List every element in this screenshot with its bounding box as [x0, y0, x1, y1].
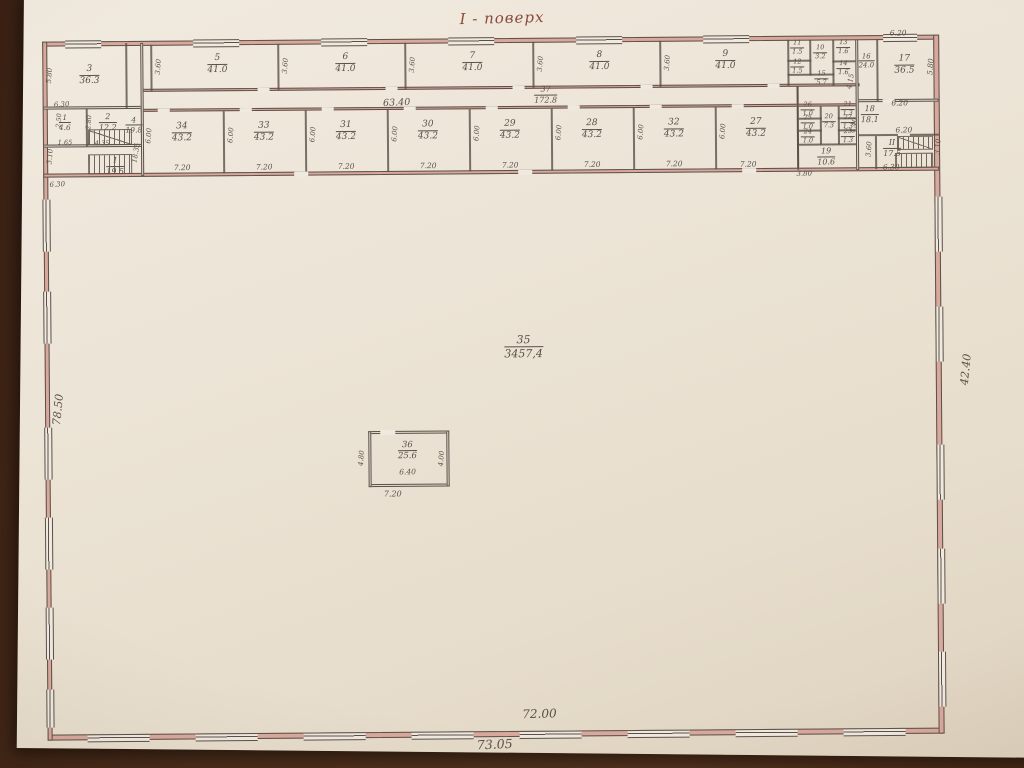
dimension-label: 3.60 [864, 141, 873, 157]
dimension-label: 63.40 [383, 97, 411, 109]
door-opening [641, 85, 653, 89]
wall [368, 431, 371, 487]
window-symbol [576, 36, 622, 44]
room-number: 9 [715, 49, 735, 61]
room-20-label: 207.3 [822, 113, 836, 130]
door-opening [486, 106, 498, 110]
dimension-label: 6.00 [308, 126, 317, 142]
dimension-label: 6.00 [718, 123, 727, 139]
room-area: 19.5 [106, 167, 124, 177]
dimension-label: 78.50 [50, 393, 66, 426]
window-symbol [934, 197, 942, 252]
room-area: 41.0 [589, 62, 609, 73]
dimension-label: 6.00 [390, 126, 399, 142]
room-area: 43.2 [500, 130, 520, 141]
dimension-label: 2.50 [54, 113, 63, 128]
dimension-label: 6.30 [54, 100, 70, 109]
room-number: 28 [582, 118, 602, 130]
dimension-label: 3.10 [933, 139, 942, 155]
window-symbol [412, 731, 474, 739]
wall [277, 44, 279, 90]
room-26-label: 261.0 [801, 101, 815, 118]
room-2-label: 212.2 [99, 112, 117, 132]
dimension-label: 5.80 [925, 58, 935, 75]
door-opening [568, 105, 580, 109]
wall [832, 39, 834, 85]
room-I-label: I19.5 [106, 156, 124, 176]
dimension-label: 7.20 [740, 160, 757, 169]
room-number: 36 [398, 440, 417, 451]
window-symbol [42, 200, 50, 252]
room-33-label: 3343.2 [254, 121, 274, 144]
room-8-label: 841.0 [589, 50, 609, 73]
dimension-label: 7.20 [384, 489, 402, 498]
room-number: 37 [534, 85, 557, 96]
photo-of-floor-plan: І - поверх 336.3419.8541.0641.0741.0841.… [0, 0, 1024, 768]
dimension-label: 7.20 [256, 162, 273, 171]
room-5-label: 541.0 [207, 53, 227, 76]
door-opening [513, 86, 525, 90]
room-16-label: 1624.0 [858, 52, 874, 70]
room-area: 43.2 [336, 132, 356, 143]
door-opening [386, 87, 398, 91]
wall [633, 108, 635, 170]
room-area: 36.3 [79, 76, 99, 87]
window-symbol [304, 732, 366, 740]
window-symbol [448, 37, 494, 45]
dimension-label: 6.30 [49, 180, 65, 189]
wall [446, 430, 449, 486]
wall [659, 41, 661, 87]
room-area: 41.0 [462, 63, 482, 74]
dimension-label: 6.20 [896, 125, 913, 134]
wall [715, 107, 717, 169]
window-symbol [938, 652, 946, 707]
room-32-label: 3243.2 [664, 117, 684, 140]
window-symbol [321, 38, 367, 46]
dimension-label: 2.80 [84, 115, 93, 130]
window-symbol [193, 39, 239, 47]
room-11-label: 111.5 [790, 39, 804, 56]
room-area: 1.5 [790, 67, 804, 75]
dimension-label: 7.20 [338, 162, 355, 171]
floor-plan: І - поверх 336.3419.8541.0641.0741.0841.… [0, 0, 1024, 768]
room-area: 41.0 [715, 61, 735, 72]
dimension-label: 6.00 [226, 127, 235, 143]
door-opening [742, 168, 756, 173]
plan-title: І - поверх [459, 8, 544, 28]
dimension-label: 42.40 [958, 353, 974, 386]
window-symbol [844, 728, 906, 736]
room-area: 43.2 [664, 129, 684, 140]
wall [469, 109, 471, 171]
dimension-label: 7.20 [420, 161, 437, 170]
door-opening [294, 172, 308, 177]
dimension-label: 6.20 [891, 98, 908, 107]
room-area: 7.3 [822, 122, 836, 130]
room-10-label: 103.2 [813, 44, 827, 61]
dimension-label: 6.40 [399, 467, 416, 476]
dimension-label: 7.20 [502, 160, 519, 169]
wall [809, 40, 811, 76]
room-area: 172.8 [534, 95, 557, 105]
dimension-label: 72.00 [522, 706, 557, 721]
room-area: 41.0 [335, 64, 355, 75]
room-number: 17 [894, 54, 914, 66]
wall [305, 111, 307, 173]
room-35-label: 353457,4 [504, 333, 543, 361]
room-area: 25.6 [398, 451, 417, 461]
window-symbol [736, 729, 798, 737]
window-symbol [43, 292, 51, 344]
dimension-label: 6.00 [554, 125, 563, 141]
room-number: 30 [418, 119, 438, 131]
dimension-label: 3.60 [536, 56, 545, 72]
door-opening [380, 430, 395, 435]
wall [551, 109, 553, 171]
room-number: 2 [99, 112, 117, 123]
wall [223, 111, 225, 173]
dimension-label: 3.60 [281, 58, 290, 74]
door-opening [258, 88, 270, 92]
room-area: 3.2 [813, 53, 827, 61]
window-symbol [936, 445, 944, 500]
room-number: 19 [817, 146, 835, 157]
dimension-label: 6.30 [883, 162, 900, 171]
wall [140, 43, 144, 176]
dimension-label: 18.35 [130, 142, 141, 163]
room-number: 5 [207, 53, 227, 65]
dimension-label: 3.60 [408, 57, 417, 73]
room-number: 4 [125, 115, 142, 125]
dimension-label: 5.80 [45, 68, 54, 84]
room-area: 43.2 [418, 131, 438, 142]
window-symbol [628, 730, 690, 738]
room-18-label: 1818.1 [861, 104, 879, 124]
room-area: 24.0 [859, 62, 875, 71]
window-symbol [196, 733, 258, 741]
dimension-label: 7.20 [666, 159, 683, 168]
window-symbol [88, 734, 150, 742]
dimension-label: 1.65 [58, 138, 73, 146]
door-opening [732, 104, 744, 108]
room-area: 18.1 [861, 115, 879, 125]
room-28-label: 2843.2 [582, 118, 602, 141]
room-number: 32 [664, 117, 684, 129]
window-symbol [703, 35, 749, 43]
room-36-label: 3625.6 [398, 440, 417, 462]
wall [141, 83, 860, 92]
room-number: 35 [504, 333, 543, 347]
room-II-label: II17.5 [883, 138, 901, 158]
wall [797, 86, 800, 170]
room-number: I [106, 156, 124, 167]
door-opening [158, 109, 170, 113]
dimension-label: 4.35 [95, 139, 110, 147]
room-30-label: 3043.2 [418, 119, 438, 142]
room-3-label: 336.3 [79, 64, 99, 87]
dimension-label: 3.80 [796, 170, 812, 178]
door-opening [768, 84, 780, 88]
room-34-label: 3443.2 [172, 121, 192, 144]
wall [875, 136, 877, 169]
room-area: 1.0 [801, 137, 815, 145]
room-area: 12.2 [99, 123, 117, 133]
window-symbol [46, 608, 54, 660]
room-19-label: 1910.6 [817, 146, 835, 166]
dimension-label: 4.15 [845, 73, 856, 90]
room-27-label: 2743.2 [746, 117, 766, 140]
window-symbol [45, 518, 53, 570]
wall [125, 43, 128, 108]
room-area: 43.2 [254, 132, 274, 143]
room-area: 1.0 [801, 123, 815, 131]
room-area: 41.0 [207, 65, 227, 76]
dimension-label: 3.60 [663, 55, 672, 71]
room-17-label: 1736.5 [894, 54, 914, 77]
window-symbol [937, 549, 945, 604]
dimension-label: 7.20 [584, 160, 601, 169]
room-area: 17.5 [883, 148, 901, 158]
room-6-label: 641.0 [335, 52, 355, 75]
door-opening [240, 108, 252, 112]
wall [150, 45, 152, 91]
wall [387, 110, 389, 172]
room-15-label: 155.7 [814, 70, 828, 87]
room-area: 36.5 [894, 65, 914, 76]
room-number: 31 [336, 120, 356, 132]
room-12-label: 121.5 [790, 58, 804, 75]
wall [369, 483, 450, 487]
room-7-label: 741.0 [462, 51, 482, 74]
room-number: 7 [462, 51, 482, 63]
room-37-label: 37172.8 [534, 85, 557, 105]
room-number: 6 [335, 52, 355, 64]
dimension-label: 6.00 [144, 128, 153, 144]
dimension-label: 6.00 [636, 124, 645, 140]
wall [532, 42, 534, 88]
door-opening [650, 105, 662, 109]
window-symbol [65, 40, 101, 48]
window-symbol [935, 307, 943, 362]
room-number: 29 [500, 119, 520, 131]
room-area: 10.6 [817, 157, 835, 167]
room-area: 43.2 [746, 128, 766, 139]
room-number: 8 [589, 50, 609, 62]
wall [876, 39, 878, 101]
room-31-label: 3143.2 [336, 120, 356, 143]
room-number: 16 [858, 52, 874, 62]
room-area: 43.2 [172, 133, 192, 144]
room-13-label: 131.6 [836, 39, 850, 56]
door-opening [322, 107, 334, 111]
room-area: 1.0 [801, 110, 815, 118]
room-number: 3 [79, 64, 99, 76]
staircase-flight [897, 136, 933, 150]
window-symbol [520, 730, 582, 738]
room-number: II [883, 138, 901, 149]
room-number: 34 [172, 121, 192, 133]
room-area: 1.6 [836, 48, 850, 56]
dimension-label: 4.00 [437, 450, 446, 466]
door-opening [518, 170, 532, 175]
dimension-label: 6.00 [472, 125, 481, 141]
room-number: 27 [746, 117, 766, 129]
room-9-label: 941.0 [715, 49, 735, 72]
dimension-label: 73.05 [476, 736, 512, 753]
dimension-label: 6.20 [890, 28, 907, 37]
window-symbol [44, 428, 52, 480]
room-area: 3457,4 [504, 347, 543, 360]
room-29-label: 2943.2 [500, 119, 520, 142]
room-area: 43.2 [582, 130, 602, 141]
dimension-label: 3.10 [45, 149, 54, 165]
room-number: 33 [254, 121, 274, 133]
window-symbol [46, 690, 54, 728]
room-area: 1.5 [790, 48, 804, 56]
wall [404, 43, 406, 89]
room-4-label: 419.8 [125, 115, 142, 134]
dimension-label: 4.80 [357, 450, 366, 466]
room-area: 1.3 [841, 137, 855, 145]
dimension-label: 7.20 [174, 163, 191, 172]
dimension-label: 3.60 [154, 59, 163, 75]
room-number: 18 [861, 104, 879, 115]
room-area: 5.7 [814, 79, 828, 87]
room-area: 19.8 [125, 125, 142, 134]
